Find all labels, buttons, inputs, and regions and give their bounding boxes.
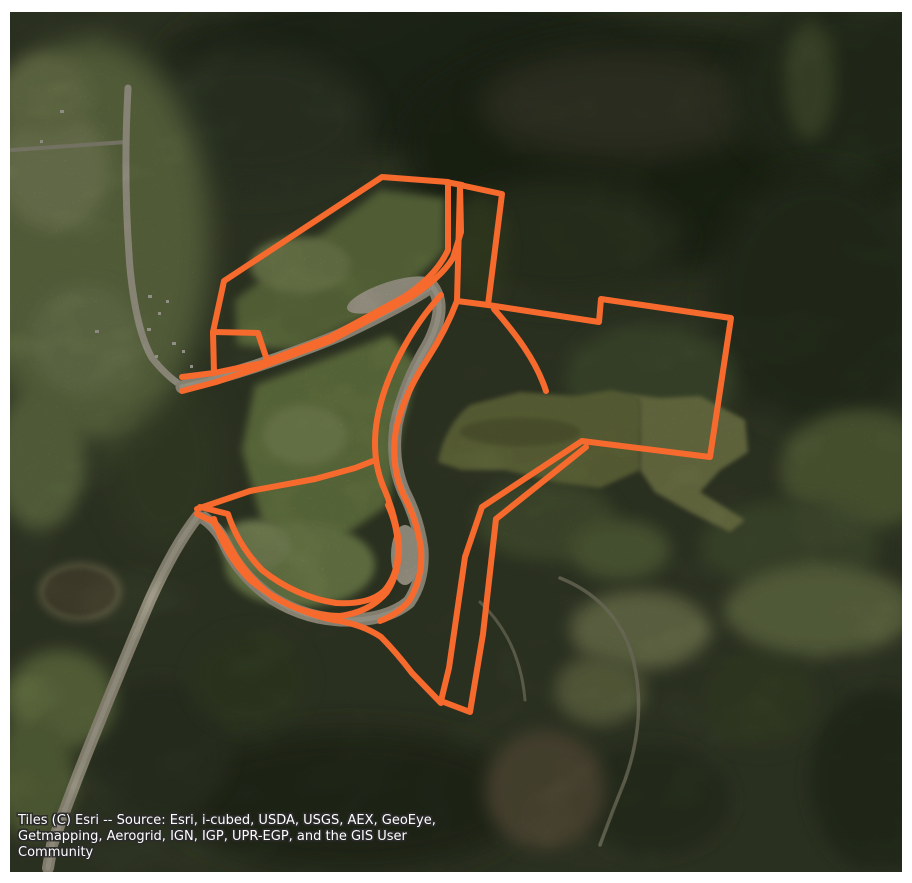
- map-canvas: Tiles (C) Esri -- Source: Esri, i-cubed,…: [10, 12, 902, 872]
- attribution-line-2: Getmapping, Aerogrid, IGN, IGP, UPR-EGP,…: [18, 829, 518, 845]
- boundary-nw-bank-end: [182, 373, 214, 377]
- figure-canvas: Tiles (C) Esri -- Source: Esri, i-cubed,…: [0, 0, 912, 883]
- attribution-line-1: Tiles (C) Esri -- Source: Esri, i-cubed,…: [18, 813, 518, 829]
- map-attribution: Tiles (C) Esri -- Source: Esri, i-cubed,…: [18, 813, 518, 861]
- attribution-line-3: Community: [18, 845, 518, 861]
- satellite-map-svg: [10, 12, 902, 872]
- satellite-basemap: [10, 12, 902, 872]
- grain-texture: [10, 12, 902, 872]
